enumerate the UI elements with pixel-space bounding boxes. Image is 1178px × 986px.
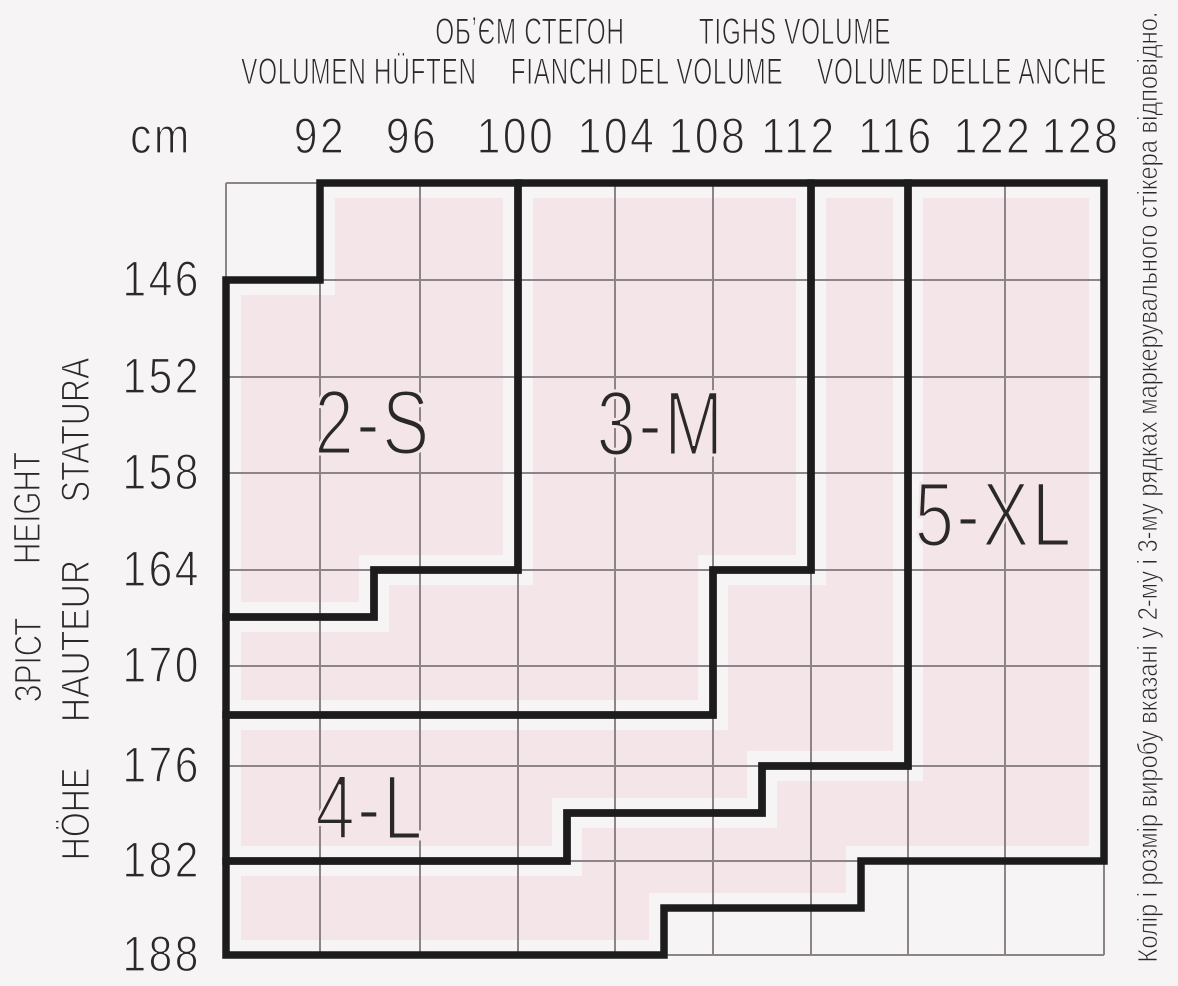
- svg-text:176: 176: [122, 737, 201, 793]
- svg-text:170: 170: [122, 637, 201, 693]
- svg-text:HÖHE: HÖHE: [53, 768, 98, 860]
- svg-text:104: 104: [578, 108, 657, 164]
- svg-text:VOLUMEN HÜFTEN: VOLUMEN HÜFTEN: [241, 51, 477, 92]
- svg-text:100: 100: [477, 108, 556, 164]
- svg-text:ОБʼЄМ СТЕГОН: ОБʼЄМ СТЕГОН: [435, 11, 624, 52]
- svg-text:152: 152: [122, 348, 201, 404]
- svg-text:96: 96: [386, 108, 438, 164]
- svg-text:112: 112: [761, 108, 836, 164]
- svg-text:188: 188: [122, 926, 201, 982]
- svg-text:VOLUME DELLE ANCHE: VOLUME DELLE ANCHE: [817, 51, 1107, 92]
- svg-text:4-L: 4-L: [315, 757, 424, 859]
- svg-text:116: 116: [858, 108, 933, 164]
- svg-text:92: 92: [294, 108, 346, 164]
- svg-text:3-M: 3-M: [597, 373, 726, 475]
- svg-text:158: 158: [122, 444, 201, 500]
- svg-text:FIANCHI DEL VOLUME: FIANCHI DEL VOLUME: [511, 51, 784, 92]
- svg-text:5-XL: 5-XL: [915, 464, 1074, 566]
- svg-text:182: 182: [122, 832, 201, 888]
- svg-text:Колір і розмір виробу вказані: Колір і розмір виробу вказані у 2-му і 3…: [1133, 12, 1163, 963]
- svg-text:STATURA: STATURA: [53, 357, 98, 502]
- svg-text:cm: cm: [130, 108, 192, 164]
- svg-text:122: 122: [954, 108, 1033, 164]
- svg-text:HEIGHT: HEIGHT: [7, 452, 49, 564]
- svg-text:146: 146: [122, 251, 201, 307]
- svg-text:HAUTEUR: HAUTEUR: [53, 560, 97, 722]
- svg-text:128: 128: [1042, 108, 1121, 164]
- svg-text:108: 108: [669, 108, 748, 164]
- svg-text:ЗРІСТ: ЗРІСТ: [8, 618, 50, 703]
- svg-text:TIGHS VOLUME: TIGHS VOLUME: [699, 11, 891, 52]
- svg-text:2-S: 2-S: [314, 372, 431, 474]
- svg-text:164: 164: [122, 541, 201, 597]
